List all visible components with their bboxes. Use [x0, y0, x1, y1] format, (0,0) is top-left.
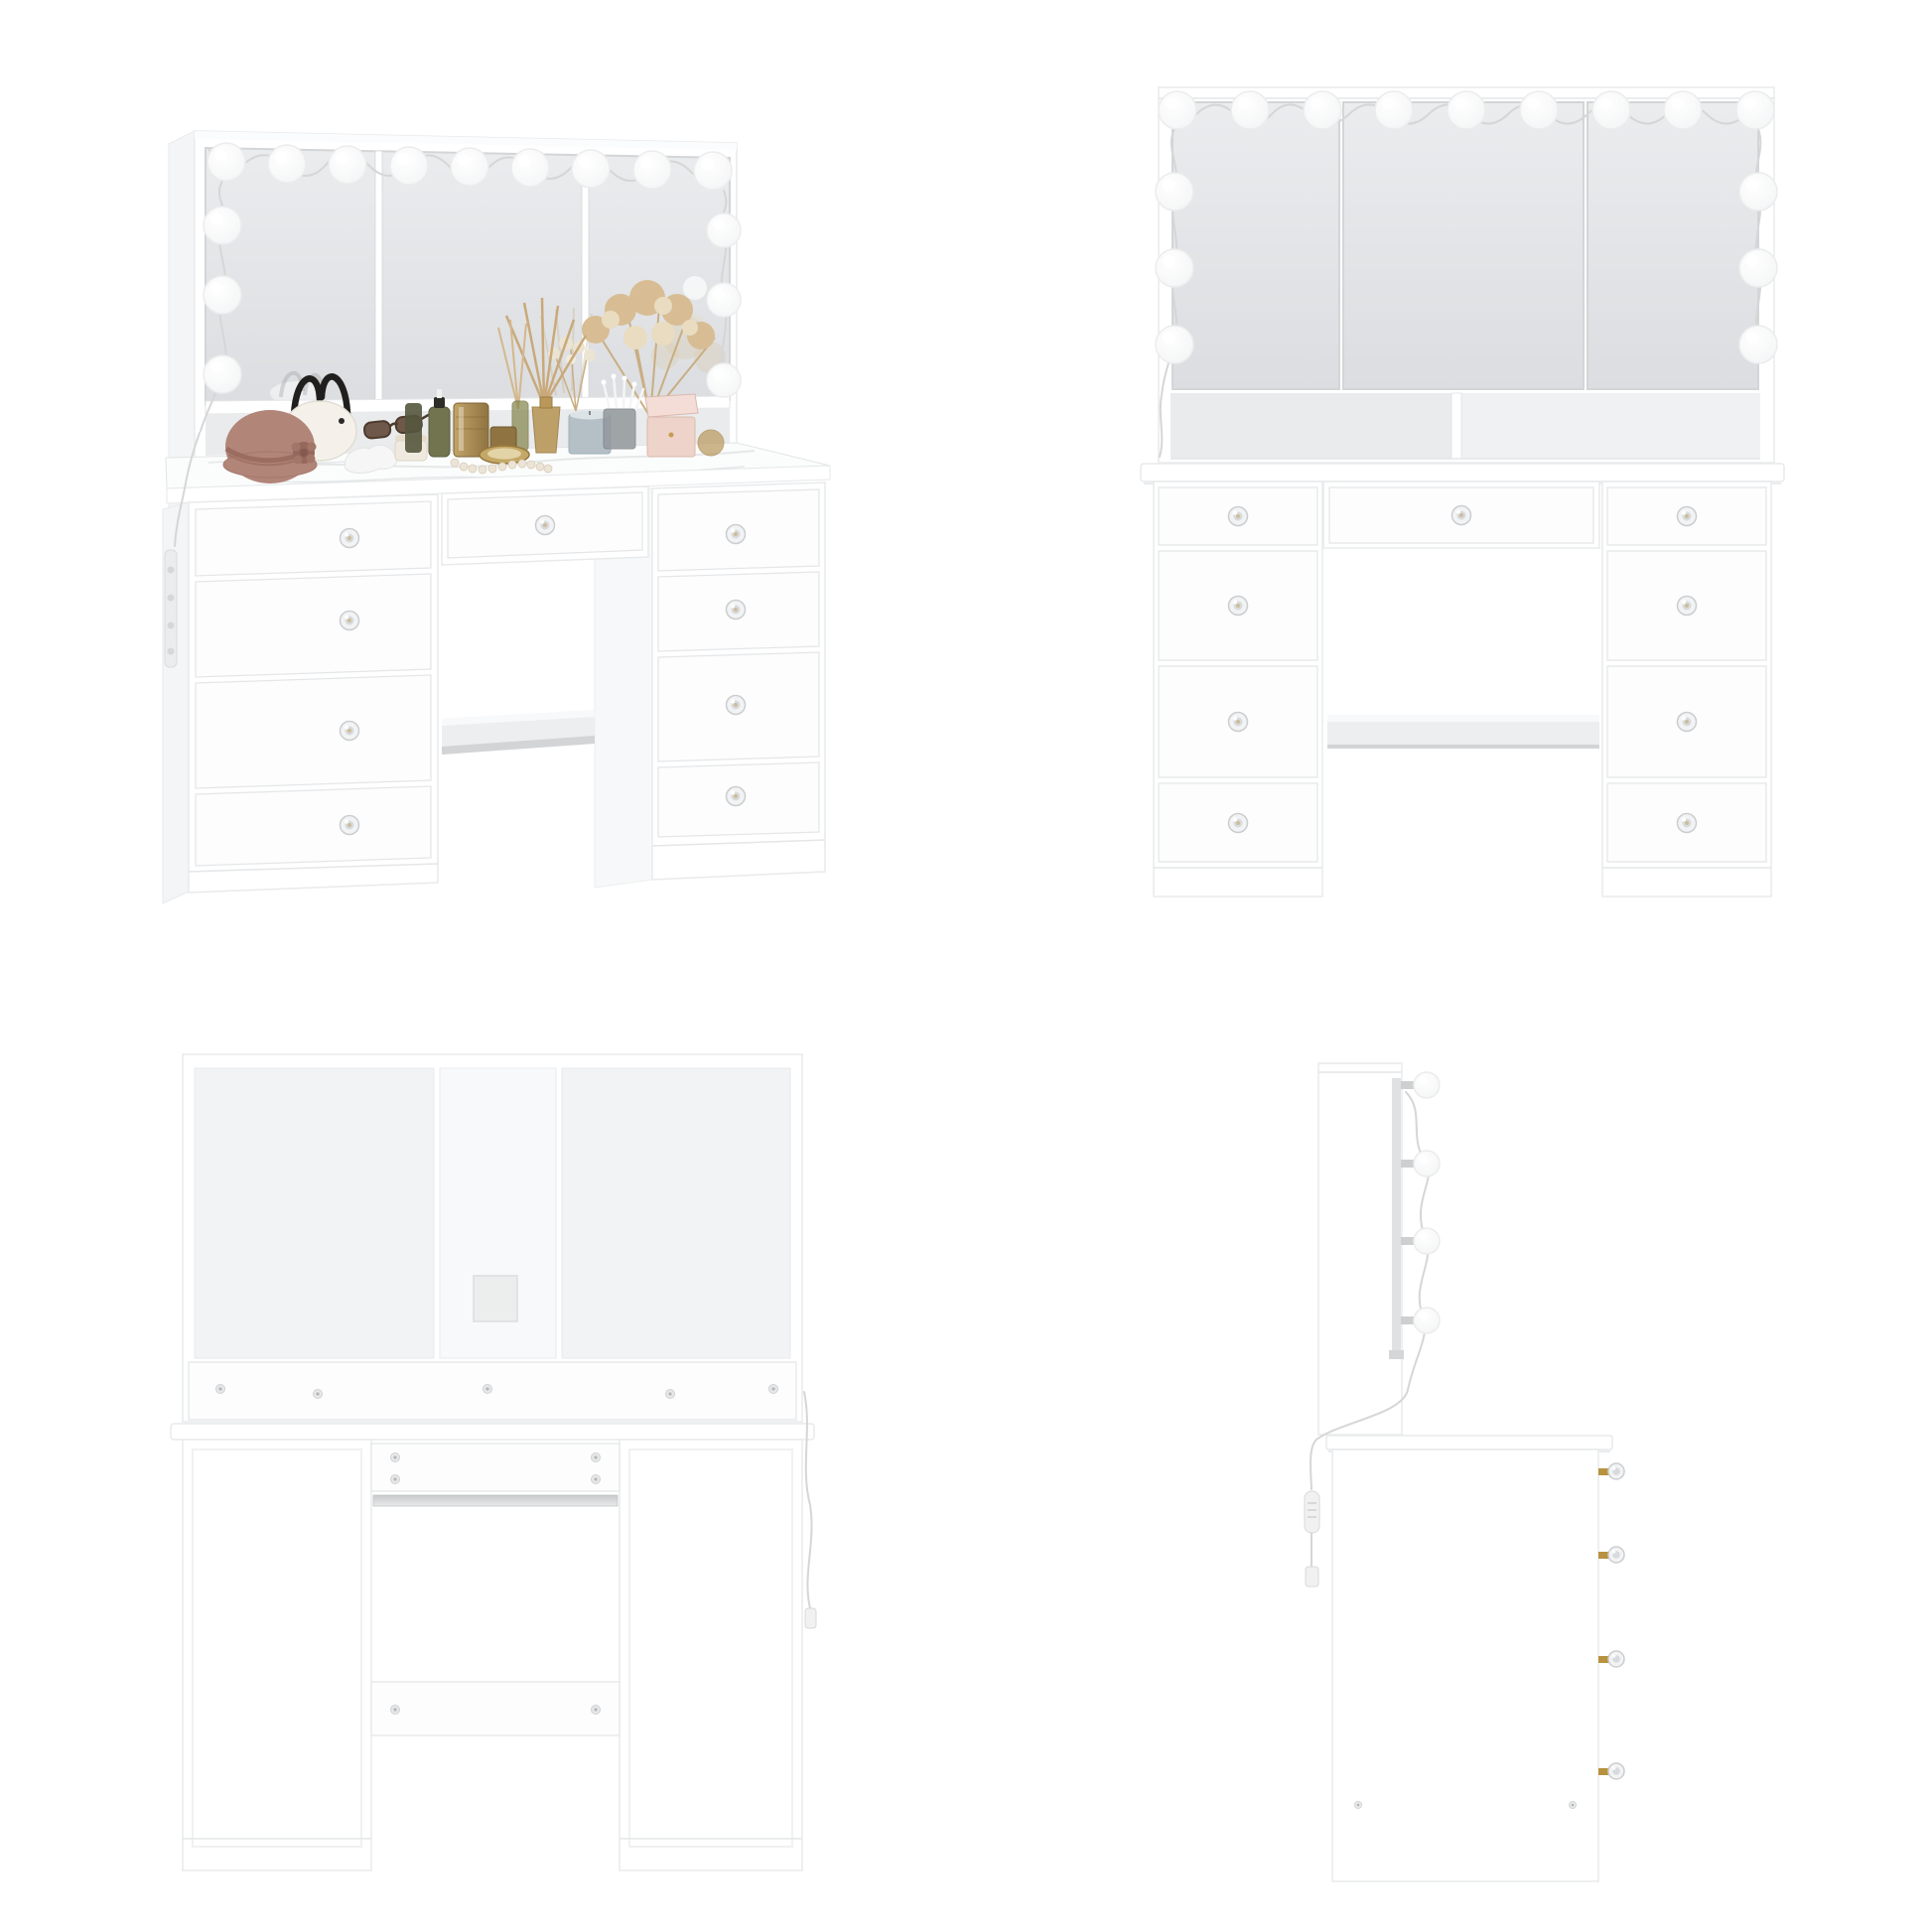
led-bulb — [707, 283, 741, 317]
drawer-knob — [1678, 814, 1697, 833]
bulb-stem — [1401, 1160, 1414, 1168]
screw — [391, 1706, 400, 1715]
led-bulb — [1414, 1228, 1440, 1254]
drawer-knob — [1229, 597, 1248, 616]
decor-amber-orb — [698, 430, 724, 456]
led-bulb — [1375, 91, 1413, 129]
screw — [592, 1475, 601, 1484]
open-shelf-right — [1461, 393, 1760, 459]
bulb-stem — [1401, 1081, 1414, 1089]
drawer-slide-bar — [373, 1495, 618, 1506]
mirror-panel-center — [1343, 102, 1584, 389]
pedestal-right-back — [620, 1440, 802, 1870]
drawer-knob — [341, 722, 359, 741]
screw — [769, 1385, 778, 1394]
led-bulb — [1448, 91, 1485, 129]
led-bulb — [1664, 91, 1702, 129]
led-bulb — [1159, 91, 1196, 129]
view-back — [171, 1054, 816, 1870]
led-bulb — [1739, 326, 1777, 363]
led-bulb — [1414, 1151, 1440, 1176]
drawer-knob — [1229, 507, 1248, 526]
mirror-panel-left — [1173, 102, 1339, 389]
product-image-grid — [0, 0, 1932, 1932]
screw — [216, 1385, 225, 1394]
knee-shelf — [1327, 715, 1599, 749]
back-panel-left — [195, 1068, 434, 1358]
hutch-bottom-rail — [189, 1362, 796, 1420]
drawer-front — [196, 574, 431, 677]
power-strip-socket — [168, 622, 175, 629]
led-bulb — [1739, 173, 1777, 210]
mirror-seam — [375, 151, 382, 404]
bulb-stem — [1401, 1316, 1414, 1324]
cable-cutout — [474, 1276, 517, 1321]
drawer-knob — [1608, 1763, 1624, 1779]
bulb-stem — [1401, 1237, 1414, 1245]
decor-jewelry-box — [645, 394, 698, 457]
mirror-bracket — [1389, 1350, 1404, 1359]
drawer-knob — [727, 696, 746, 715]
led-bulb — [633, 151, 671, 189]
led-bulb — [1231, 91, 1269, 129]
screw — [483, 1385, 492, 1394]
drawer-knob — [1608, 1651, 1624, 1667]
led-bulb — [204, 276, 241, 314]
led-bulb — [1739, 249, 1777, 287]
led-bulb — [1414, 1072, 1440, 1098]
pedestal-left-back — [183, 1440, 371, 1870]
led-bulb — [572, 150, 610, 188]
drawer-front — [196, 501, 431, 576]
shelf-divider — [1451, 393, 1461, 459]
tabletop — [1326, 1436, 1612, 1449]
drawer-front — [196, 786, 431, 866]
vanity-product-collage — [0, 0, 1932, 1932]
led-bulb — [451, 148, 488, 186]
power-plug — [1306, 1567, 1318, 1587]
support-crossbar — [371, 1682, 620, 1735]
screw — [314, 1390, 323, 1399]
led-bulb — [207, 143, 245, 181]
drawer-front — [196, 675, 431, 788]
led-bulb — [1156, 173, 1193, 210]
drawer-knob — [1678, 597, 1697, 616]
led-bulb — [329, 146, 366, 184]
knee-shelf — [442, 710, 595, 755]
screw — [592, 1453, 601, 1462]
drawer-knob — [341, 612, 359, 630]
drawer-knob — [1678, 507, 1697, 526]
power-strip-socket — [168, 595, 175, 602]
led-bulb — [1414, 1308, 1440, 1333]
drawer-knob — [1229, 713, 1248, 732]
mirror-edge-strip — [1392, 1078, 1401, 1352]
led-bulb — [694, 152, 732, 190]
drawer-knob — [341, 816, 359, 835]
led-bulb — [204, 355, 241, 393]
drawer-knob — [1608, 1547, 1624, 1563]
drawer-knob — [341, 529, 359, 548]
mirror-side-panel — [1318, 1063, 1402, 1435]
screw — [391, 1475, 400, 1484]
drawer-knob — [1608, 1463, 1624, 1479]
led-bulb — [707, 213, 741, 247]
led-bulb — [1156, 249, 1193, 287]
drawer-knob — [1229, 814, 1248, 833]
drawer-knob — [727, 525, 746, 544]
back-apron — [371, 1444, 620, 1491]
led-bulb — [1592, 91, 1630, 129]
view-front — [1141, 87, 1784, 897]
desk-side-panel — [1332, 1449, 1598, 1881]
tabletop — [171, 1424, 814, 1440]
view-side — [1305, 1063, 1624, 1881]
inline-switch — [1305, 1491, 1319, 1533]
drawer-knob — [1452, 506, 1471, 525]
led-bulb — [1520, 91, 1558, 129]
led-bulb — [204, 207, 241, 244]
power-strip-socket — [168, 648, 175, 655]
back-panel-right — [562, 1068, 790, 1358]
mirror-panel-right — [1587, 102, 1758, 389]
led-bulb — [511, 149, 549, 187]
led-bulb — [1156, 326, 1193, 363]
led-bulb — [390, 147, 428, 185]
led-bulb — [1736, 91, 1774, 129]
drawer-knob — [536, 516, 555, 535]
screw — [391, 1453, 400, 1462]
screw — [1354, 1801, 1361, 1808]
led-bulb — [707, 363, 741, 397]
power-plug — [805, 1608, 816, 1628]
led-bulb — [268, 145, 306, 183]
drawer-knob — [727, 601, 746, 620]
screw — [1569, 1801, 1576, 1808]
screw — [592, 1706, 601, 1715]
drawer-knob — [1678, 713, 1697, 732]
screw — [666, 1390, 675, 1399]
view-perspective — [163, 131, 830, 903]
open-shelf-left — [1171, 393, 1451, 459]
drawer-knob — [727, 787, 746, 806]
power-strip-socket — [168, 567, 175, 574]
led-bulb — [1304, 91, 1341, 129]
tabletop — [1141, 464, 1784, 482]
